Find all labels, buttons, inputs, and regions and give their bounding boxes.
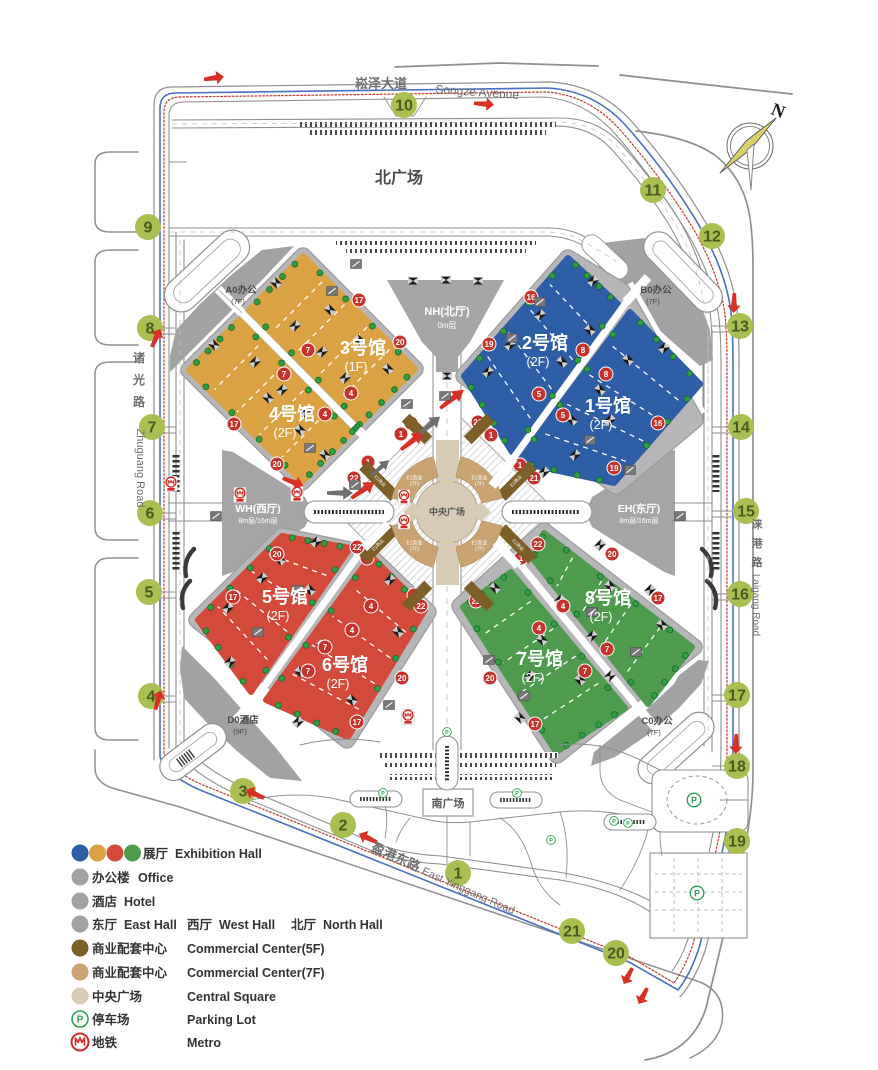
svg-text:17: 17: [654, 594, 663, 603]
svg-text:P: P: [549, 838, 553, 844]
svg-text:(7F): (7F): [475, 547, 485, 553]
svg-text:北广场: 北广场: [375, 168, 423, 187]
svg-text:展厅: 展厅: [143, 847, 169, 861]
svg-text:8m层/16m层: 8m层/16m层: [238, 517, 277, 525]
svg-text:(9F): (9F): [233, 727, 247, 736]
svg-text:(2F): (2F): [274, 426, 297, 440]
svg-text:7号馆: 7号馆: [517, 648, 563, 669]
svg-text:P: P: [626, 821, 630, 827]
svg-text:涞: 涞: [752, 517, 763, 531]
svg-text:Exhibition Hall: Exhibition Hall: [175, 847, 262, 861]
svg-text:(2F): (2F): [522, 671, 545, 685]
svg-text:7: 7: [306, 346, 311, 355]
svg-text:(2F): (2F): [327, 677, 350, 691]
svg-text:Parking Lot: Parking Lot: [187, 1013, 257, 1027]
svg-text:17: 17: [728, 688, 746, 705]
svg-text:诸: 诸: [133, 350, 145, 365]
svg-text:4: 4: [350, 626, 355, 635]
svg-text:(7F): (7F): [410, 547, 420, 553]
svg-text:10: 10: [395, 98, 413, 115]
svg-text:22: 22: [534, 540, 543, 549]
svg-text:P: P: [691, 795, 697, 805]
svg-text:(2F): (2F): [527, 355, 550, 369]
svg-text:22: 22: [353, 543, 362, 552]
svg-text:(7F): (7F): [231, 297, 245, 306]
svg-text:东厅: 东厅: [92, 917, 118, 932]
svg-text:19: 19: [485, 340, 494, 349]
svg-text:Commercial Center(7F): Commercial Center(7F): [187, 966, 325, 980]
svg-text:4: 4: [561, 602, 566, 611]
svg-text:West Hall: West Hall: [219, 918, 275, 932]
svg-text:4: 4: [537, 624, 542, 633]
svg-text:15: 15: [737, 504, 755, 521]
svg-text:0m层: 0m层: [437, 321, 456, 330]
svg-text:7: 7: [605, 645, 610, 654]
svg-text:P: P: [381, 791, 385, 797]
svg-text:Hotel: Hotel: [124, 895, 155, 909]
svg-text:17: 17: [230, 420, 239, 429]
svg-text:1: 1: [489, 431, 494, 440]
svg-text:Office: Office: [138, 871, 173, 885]
svg-text:North Hall: North Hall: [323, 918, 383, 932]
svg-text:地铁: 地铁: [92, 1035, 118, 1050]
svg-text:E1商业: E1商业: [471, 475, 487, 482]
svg-text:停车场: 停车场: [92, 1012, 130, 1027]
svg-text:Central Square: Central Square: [187, 990, 276, 1004]
svg-text:(7F): (7F): [410, 482, 420, 488]
svg-text:8: 8: [604, 370, 609, 379]
svg-text:4: 4: [369, 602, 374, 611]
svg-text:13: 13: [731, 319, 749, 336]
svg-text:P: P: [77, 1015, 84, 1026]
svg-text:P: P: [612, 819, 616, 825]
svg-text:P: P: [694, 888, 700, 898]
svg-text:(2F): (2F): [267, 609, 290, 623]
svg-text:18: 18: [728, 759, 746, 776]
svg-text:北厅: 北厅: [291, 917, 317, 932]
svg-text:南广场: 南广场: [432, 796, 465, 810]
svg-text:D0酒店: D0酒店: [227, 714, 259, 726]
svg-text:21: 21: [563, 924, 581, 941]
svg-text:1: 1: [399, 430, 404, 439]
svg-text:8: 8: [581, 346, 586, 355]
svg-text:19: 19: [728, 834, 746, 851]
svg-text:17: 17: [355, 296, 364, 305]
svg-text:(1F): (1F): [345, 360, 368, 374]
svg-text:酒店: 酒店: [92, 894, 118, 909]
svg-text:E1商业: E1商业: [406, 540, 422, 547]
svg-text:(2F): (2F): [590, 418, 613, 432]
svg-text:4: 4: [349, 389, 354, 398]
svg-text:4: 4: [147, 689, 156, 706]
svg-text:5: 5: [537, 390, 542, 399]
svg-text:西厅: 西厅: [187, 918, 213, 932]
svg-text:2号馆: 2号馆: [522, 332, 568, 353]
svg-text:20: 20: [608, 550, 617, 559]
svg-text:3: 3: [239, 784, 248, 801]
svg-text:20: 20: [607, 946, 625, 963]
svg-text:6: 6: [146, 506, 155, 523]
svg-text:光: 光: [132, 372, 145, 387]
svg-text:E1商业: E1商业: [406, 475, 422, 482]
svg-text:中央广场: 中央广场: [429, 506, 465, 517]
svg-text:20: 20: [273, 550, 282, 559]
svg-text:商业配套中心: 商业配套中心: [92, 965, 168, 980]
svg-text:A0办公: A0办公: [225, 284, 257, 296]
svg-text:8号馆: 8号馆: [585, 587, 631, 608]
svg-text:(2F): (2F): [590, 610, 613, 624]
svg-text:8m层/16m层: 8m层/16m层: [619, 517, 658, 525]
svg-text:20: 20: [398, 674, 407, 683]
svg-text:(7F): (7F): [646, 297, 660, 306]
svg-text:4: 4: [323, 410, 328, 419]
svg-text:7: 7: [306, 667, 311, 676]
svg-text:Laigang Road: Laigang Road: [750, 574, 761, 636]
svg-text:Metro: Metro: [187, 1036, 221, 1050]
svg-text:7: 7: [148, 420, 157, 437]
svg-text:11: 11: [645, 183, 662, 200]
svg-text:20: 20: [486, 674, 495, 683]
svg-text:5: 5: [145, 585, 154, 602]
svg-text:(7F): (7F): [475, 482, 485, 488]
svg-text:12: 12: [703, 229, 721, 246]
svg-text:崧泽大道: 崧泽大道: [355, 76, 407, 91]
svg-text:B0办公: B0办公: [640, 284, 672, 296]
svg-text:4号馆: 4号馆: [269, 403, 315, 424]
svg-text:商业配套中心: 商业配套中心: [92, 941, 168, 956]
svg-text:7: 7: [323, 643, 328, 652]
svg-text:19: 19: [610, 464, 619, 473]
svg-text:EH(东厅): EH(东厅): [618, 502, 661, 515]
svg-text:路: 路: [752, 555, 764, 569]
svg-text:1号馆: 1号馆: [585, 395, 631, 416]
svg-text:17: 17: [353, 718, 362, 727]
svg-text:17: 17: [531, 720, 540, 729]
svg-text:14: 14: [732, 420, 750, 437]
svg-text:办公楼: 办公楼: [92, 870, 130, 885]
svg-text:P: P: [445, 730, 449, 736]
svg-text:20: 20: [396, 338, 405, 347]
svg-text:7: 7: [583, 667, 588, 676]
svg-text:C0办公: C0办公: [641, 715, 673, 727]
svg-text:港: 港: [752, 536, 764, 550]
svg-text:P: P: [515, 791, 519, 797]
svg-text:E1商业: E1商业: [471, 540, 487, 547]
svg-text:8: 8: [146, 321, 155, 338]
svg-text:6号馆: 6号馆: [322, 654, 368, 675]
svg-text:20: 20: [273, 460, 282, 469]
svg-text:中央广场: 中央广场: [92, 989, 142, 1004]
svg-text:22: 22: [417, 602, 426, 611]
svg-text:2: 2: [339, 818, 348, 835]
svg-text:9: 9: [144, 220, 153, 237]
svg-text:(7F): (7F): [647, 728, 661, 737]
svg-text:5号馆: 5号馆: [262, 586, 308, 607]
svg-text:3号馆: 3号馆: [340, 337, 386, 358]
svg-text:East Hall: East Hall: [124, 918, 177, 932]
svg-text:7: 7: [282, 370, 287, 379]
svg-text:5: 5: [561, 411, 566, 420]
svg-text:NH(北厅): NH(北厅): [424, 304, 470, 318]
svg-text:17: 17: [229, 593, 238, 602]
svg-text:Commercial Center(5F): Commercial Center(5F): [187, 942, 325, 956]
svg-text:路: 路: [133, 394, 146, 409]
svg-text:Zhuguang Road: Zhuguang Road: [134, 429, 146, 508]
svg-text:WH(西厅): WH(西厅): [235, 503, 281, 515]
svg-text:16: 16: [731, 587, 749, 604]
svg-text:16: 16: [654, 419, 663, 428]
